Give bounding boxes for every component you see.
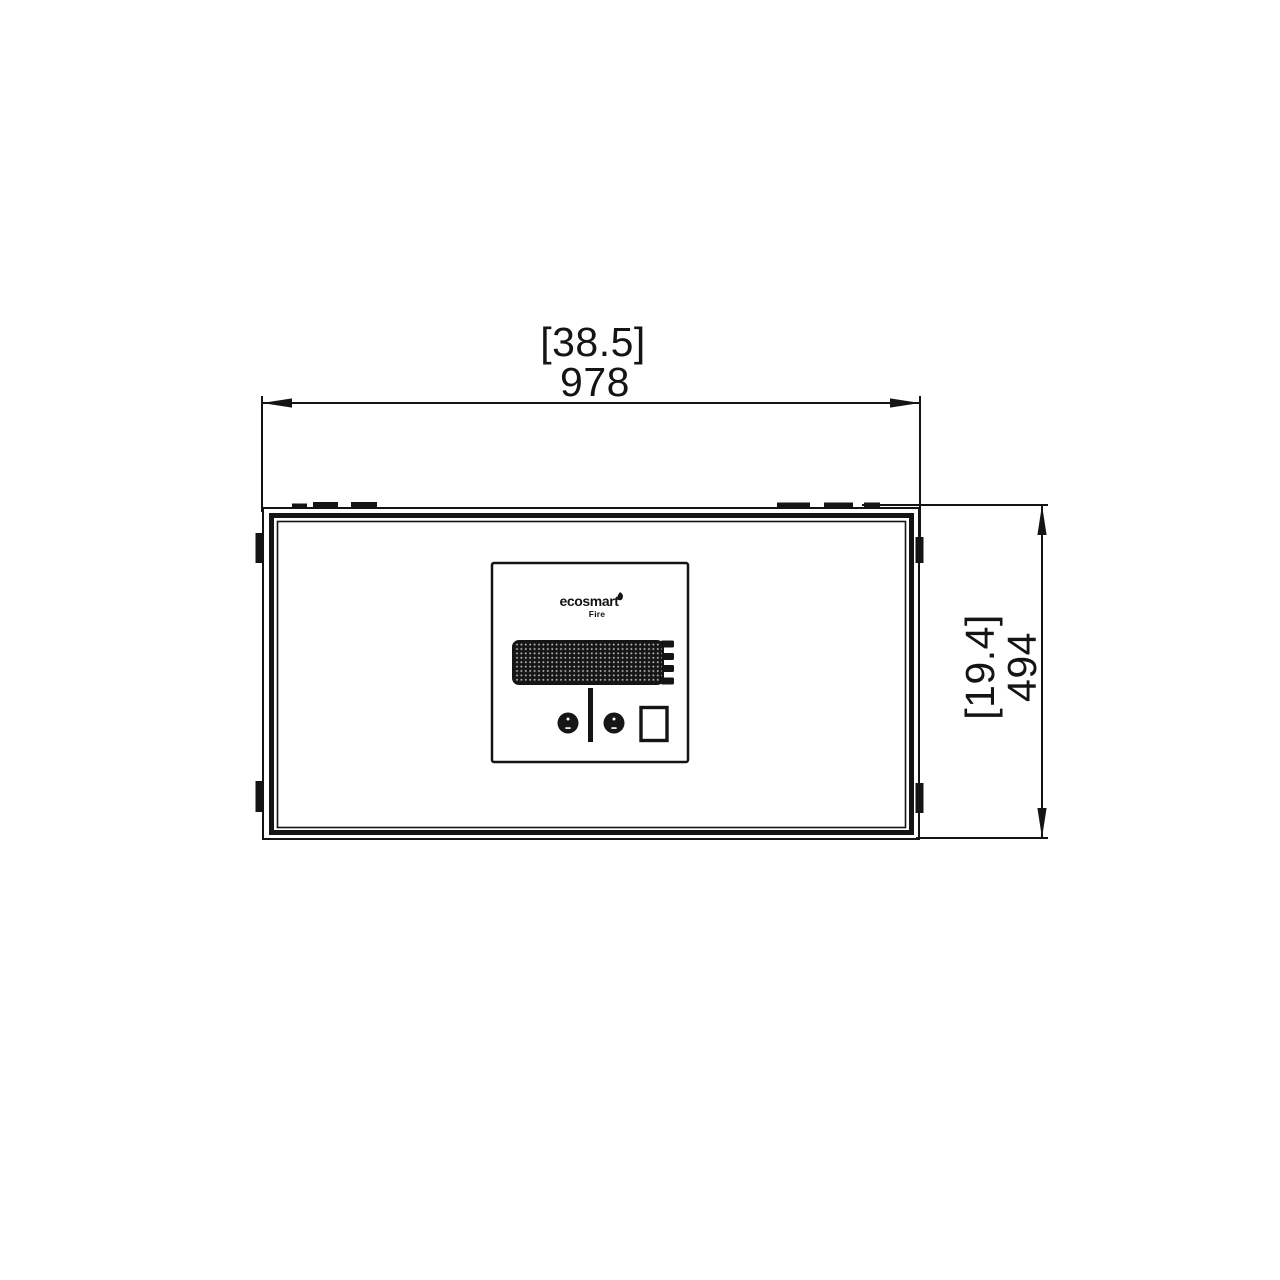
height-dim-imperial-label: [19.4]	[957, 614, 1003, 720]
height-dim-metric-label: 494	[999, 632, 1045, 702]
drawing-svg: [38.5] 978 [19.4] 494	[0, 0, 1280, 1280]
button-dot-icon	[613, 718, 616, 721]
power-button-right[interactable]	[604, 713, 625, 734]
mounting-tab	[351, 502, 377, 509]
display-pin	[661, 641, 674, 648]
power-button-left-face[interactable]	[558, 713, 579, 734]
button-dash-icon	[565, 727, 571, 729]
mounting-tab	[864, 503, 880, 510]
switch-rect[interactable]	[641, 708, 667, 741]
arrowhead-right-icon	[890, 398, 920, 407]
mounting-tab	[916, 537, 924, 563]
arrowhead-up-icon	[1037, 505, 1046, 535]
led-display	[513, 641, 663, 684]
brand-product-label: Fire	[589, 609, 605, 619]
mounting-tab	[292, 504, 307, 509]
panel-divider	[588, 688, 593, 742]
power-button-left[interactable]	[558, 713, 579, 734]
height-dimension: [19.4] 494	[862, 505, 1048, 838]
drawing-canvas: [38.5] 978 [19.4] 494	[0, 0, 1280, 1280]
mounting-tab	[916, 783, 924, 813]
arrowhead-down-icon	[1037, 808, 1046, 838]
width-dim-metric-label: 978	[560, 359, 630, 405]
display-pin	[663, 653, 674, 660]
mounting-tab	[777, 503, 810, 510]
display-pin	[663, 665, 674, 672]
mounting-tab	[824, 503, 853, 510]
arrowhead-left-icon	[262, 398, 292, 407]
brand-wordmark: ecosmart	[559, 593, 619, 609]
control-panel: ecosmart Fire	[492, 563, 688, 762]
mounting-tab	[313, 502, 338, 509]
button-dot-icon	[567, 718, 570, 721]
mounting-tab	[256, 781, 264, 812]
power-button-right-face[interactable]	[604, 713, 625, 734]
display-pin	[661, 678, 674, 685]
button-dash-icon	[611, 727, 617, 729]
mounting-tab	[256, 533, 264, 563]
